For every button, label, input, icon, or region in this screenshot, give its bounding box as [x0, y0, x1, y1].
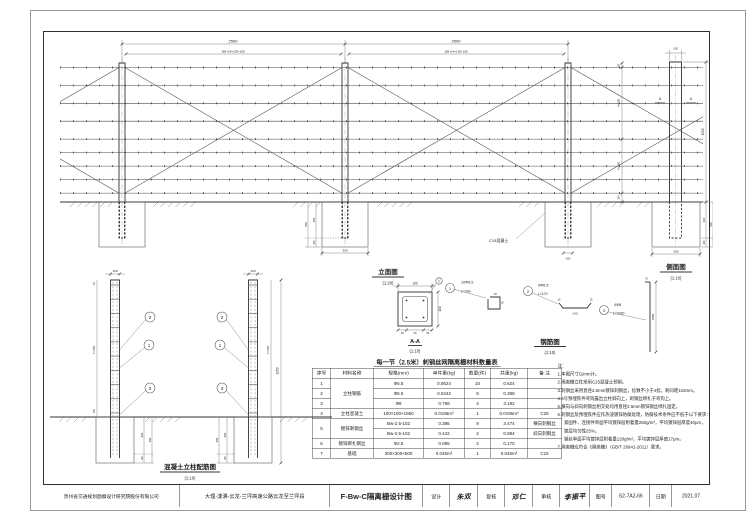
cell: 0.798 — [424, 398, 465, 408]
dim-side-gap: 100 — [703, 240, 706, 245]
col-spec: 规格(mm) — [373, 368, 424, 378]
detail3-dim-b: 1950 — [651, 313, 655, 320]
cell: 0.386 — [424, 418, 465, 428]
callout-3: 3 — [221, 386, 224, 391]
cell: 10 — [464, 378, 491, 388]
project-name: 大理-漾濞-云龙-兰坪高速公路云龙至兰坪段 — [180, 485, 330, 507]
callout-1: 1 — [219, 343, 222, 348]
dim-wire-lower: 4×150 — [617, 162, 621, 171]
c15-concrete-annotation: C15混凝土 100 — [489, 213, 574, 261]
dim-found-embed: 400 — [312, 217, 316, 222]
post-rebar-layout-drawing: 2 1 3 2 1 3 100 100 50 7×250 150 — [45, 265, 337, 483]
rebar-layout-scale: (1:10) — [185, 476, 197, 481]
stirrup-ticks — [249, 285, 258, 413]
rebar-callouts-left: 2 1 3 — [120, 312, 156, 415]
dim-side-found-width: 300 — [673, 249, 678, 253]
rebar-detail-1: 1 10Φ6.5 L=240 70 70 — [446, 281, 505, 310]
cell: 0.170 — [491, 438, 528, 448]
rebar-post-right — [249, 280, 258, 458]
col-name: 材料名称 — [331, 368, 374, 378]
cell: Φ2.5 — [373, 438, 424, 448]
cell: Φ6.5 — [373, 378, 424, 388]
cell: 2 — [464, 438, 491, 448]
dim-side-depth: 500 — [709, 222, 713, 227]
cell: 9 — [464, 418, 491, 428]
fence-elevation-drawing: 2500 2500 165+14×155+165 165+14×155+165 … — [45, 35, 713, 290]
rebar-layout-label: 混凝土立柱配筋图 (1:10) — [160, 462, 220, 481]
drawing-title: F-Bw-C隔离栅设计图 — [330, 485, 423, 507]
cell: 立柱混凝土 — [331, 408, 374, 418]
callout-2: 2 — [221, 315, 224, 320]
note-line: 紧固件、连接件单面平均镀锌层附着量250g/m²，平均镀锌层厚度40μm， — [552, 419, 712, 427]
barbed-wires — [60, 68, 703, 194]
dim-found-gap: 100 — [313, 240, 316, 245]
dim-side-embed: 400 — [702, 217, 706, 222]
section-mark-a-right: A — [690, 97, 693, 101]
rebar-callouts-right: 2 1 3 — [215, 312, 249, 415]
cell: 0.398 — [491, 388, 528, 398]
cell: 0.085 — [424, 438, 465, 448]
cell: 4 — [464, 398, 491, 408]
design-signature: 朱双 — [450, 485, 478, 507]
cell: 3 — [312, 398, 331, 408]
check-signature: 邓仁 — [505, 485, 533, 507]
rebar-detail-2: 2 9Φ6.5 L=170 15 140 15 — [524, 284, 593, 316]
section-and-rebar-details: 1 100 100 25 50 25 A-A (1:10) 1 10Φ6.5 L… — [350, 268, 712, 360]
cell: 1 — [464, 408, 491, 418]
foundations — [99, 202, 700, 247]
title-block: 贵州省交通规划勘察设计研究院股份有限公司 大理-漾濞-云龙-兰坪高速公路云龙至兰… — [43, 484, 710, 507]
note-line: 5.横向与斜向刺钢丝相交处均用直径2.5mm镀锌钢丝绑扎固定。 — [552, 403, 712, 411]
callout-3: 3 — [149, 386, 152, 391]
dim-wire-bottom: 100 — [617, 195, 621, 200]
dim-post-length: 1950 — [276, 367, 280, 374]
cell: 2 — [312, 388, 331, 398]
detail1-dim-a: 70 — [493, 292, 497, 296]
col-unitwt: 单件重(kg) — [424, 368, 465, 378]
callout-1: 1 — [438, 279, 440, 283]
dim-sec-cover-l: 25 — [401, 331, 404, 335]
dim-gap-l: 100 — [141, 456, 144, 461]
drawing-number-label: 图号 — [590, 485, 612, 507]
cell: 4 — [312, 408, 331, 418]
check-label: 复核 — [478, 485, 505, 507]
detail3-spec: 4Φ8 — [614, 303, 621, 307]
detail1-dim-b: 70 — [501, 301, 505, 305]
dim-wire-top: 50 — [617, 63, 621, 66]
table-row: 6 镀锌绑扎钢丝 Φ2.5 0.085 2 0.170 — [312, 438, 562, 448]
section-a-a: 1 100 100 25 50 25 A-A (1:10) — [394, 278, 442, 354]
cell: 0.045m³ — [424, 448, 465, 458]
cell: 0.045m³ — [491, 448, 528, 458]
notes-heading: 注： — [552, 362, 712, 370]
callout-1: 1 — [148, 343, 151, 348]
material-table-block: 每一节（2.5米）刺钢丝网隔离栅材料数量表 序号 材料名称 规格(mm) 单件重… — [312, 357, 562, 459]
note-line: 3.刺钢丝采用直径2.5mm镀锌刺钢丝，捻数不小于4捻，刺间距102mm。 — [552, 386, 712, 394]
cell: Bw-2.5-102 — [373, 418, 424, 428]
cell: 0.0624 — [424, 378, 465, 388]
cell: 7 — [312, 448, 331, 458]
section-scale: (1:10) — [410, 349, 422, 354]
dim-tie-top: 50 — [93, 282, 96, 285]
dim-gap-r: 100 — [224, 456, 227, 461]
review-signature: 李振平 — [560, 485, 590, 507]
cell: Bw-2.5-102 — [373, 428, 424, 438]
cell: 1 — [312, 378, 331, 388]
material-table-title: 每一节（2.5米）刺钢丝网隔离栅材料数量表 — [312, 357, 562, 367]
note-line: 4.3号预埋铁件弯钩露出立柱斜向上，刺钢丝绑扎于弯钩上。 — [552, 394, 712, 402]
dim-found-width: 300 — [342, 249, 347, 253]
dim-side-post-width: 100 — [673, 47, 678, 51]
section-label: A-A — [410, 339, 420, 345]
side-view: 100 A A 1550 400 100 500 — [651, 47, 713, 281]
cell: 基础 — [331, 448, 374, 458]
wire-spacing-dimensions: 50 4×200 4×150 100 — [617, 62, 624, 204]
cell: 3.474 — [491, 418, 528, 428]
cell: 镀锌绑扎钢丝 — [331, 438, 374, 448]
cell: 0.0195m³ — [491, 408, 528, 418]
dim-post-above-ground: 1550 — [701, 128, 705, 135]
note-line: 7.隔离栅应符合《隔离栅》（GB/T 26941-2011）要求。 — [552, 443, 712, 451]
dim-tie-bot: 150 — [93, 408, 96, 413]
dim-section-height: 100 — [438, 306, 442, 312]
material-table: 序号 材料名称 规格(mm) 单件重(kg) 数量(件) 共重(kg) 备 注 … — [312, 368, 562, 459]
dim-sec-cover-r: 25 — [426, 331, 429, 335]
c15-concrete-label: C15混凝土 — [489, 237, 508, 243]
drawing-number: S2-7A2-66 — [612, 485, 650, 507]
company-name: 贵州省交通规划勘察设计研究院股份有限公司 — [43, 485, 180, 507]
table-row: 7 基础 300×300×500 0.045m³ 1 0.045m³ C15 — [312, 448, 562, 458]
dim-depth-l: 500 — [148, 437, 152, 442]
table-row: 1 立柱钢筋 Φ6.5 0.0624 10 0.624 — [312, 378, 562, 388]
dim-section-width: 100 — [412, 281, 418, 285]
rebar-dimensions: 100 100 50 7×250 150 400 100 500 400 100… — [92, 269, 283, 465]
cell: 0.442 — [424, 428, 465, 438]
rebar-layout-title: 混凝土立柱配筋图 — [164, 462, 217, 471]
table-row: 4 立柱混凝土 100×100×1950 0.0195m³ 1 0.0195m³… — [312, 408, 562, 418]
note-line: 2.隔离栅立柱采用C25混凝土预制。 — [552, 378, 712, 386]
dim-panel-span-2: 2500 — [452, 39, 462, 44]
stirrup-ticks — [111, 285, 120, 413]
top-dimensions: 2500 2500 165+14×155+165 165+14×155+165 — [121, 39, 570, 63]
rebar-ground — [50, 417, 332, 463]
post-centerlines — [122, 55, 676, 247]
dim-post-width-found: 100 — [566, 257, 571, 261]
note-line: 镀层均匀性25%。 — [552, 427, 712, 435]
cell: 2 — [464, 428, 491, 438]
rebar-detail-title: 钢筋图 — [540, 337, 560, 346]
note-line: 6.刺钢丝及预埋铁件应作热浸镀锌防腐处理，防腐技术条件应不低于以下要求： — [552, 411, 712, 419]
cell: 100×100×1950 — [373, 408, 424, 418]
table-header-row: 序号 材料名称 规格(mm) 单件重(kg) 数量(件) 共重(kg) 备 注 — [312, 368, 562, 378]
dim-depth-r: 500 — [215, 437, 219, 442]
detail3-dim-a: 70 — [645, 277, 648, 281]
dim-post-top-width-l: 100 — [112, 269, 117, 273]
rebar-detail-label: 钢筋图 (1:10) — [534, 337, 566, 355]
date-value: 2021.07 — [672, 485, 710, 507]
rebar-detail-3: 3 4Φ8 L=2020 70 1950 — [600, 277, 658, 354]
col-seq: 序号 — [312, 368, 331, 378]
col-qty: 数量(件) — [464, 368, 491, 378]
cell: 立柱钢筋 — [331, 378, 374, 408]
notes-block: 注： 1.本图尺寸以mm计。 2.隔离栅立柱采用C25混凝土预制。 3.刺钢丝采… — [552, 362, 712, 451]
ground-line — [60, 202, 703, 207]
note-line: 1.本图尺寸以mm计。 — [552, 370, 712, 378]
cell: 300×300×500 — [373, 448, 424, 458]
callout-2: 2 — [149, 315, 152, 320]
cell: 0.624 — [491, 378, 528, 388]
cell: Φ8 — [373, 398, 424, 408]
rebar-post-left — [111, 280, 120, 458]
callout-3: 3 — [603, 308, 606, 313]
dim-tie-mid-l: 7×250 — [92, 346, 96, 355]
dim-panel-span-1: 2500 — [229, 39, 239, 44]
cell: 0.0442 — [424, 388, 465, 398]
col-totwt: 共重(kg) — [491, 368, 528, 378]
dim-panel-sub-2: 165+14×155+165 — [444, 50, 468, 54]
cell: 0.0195m³ — [424, 408, 465, 418]
callout-1: 1 — [449, 286, 452, 291]
dim-found-depth: 500 — [304, 222, 308, 227]
rebar-detail-scale: (1:10) — [545, 350, 557, 355]
cell: 9 — [464, 388, 491, 398]
section-mark-a-left: A — [659, 97, 662, 101]
dim-sec-mid: 50 — [414, 331, 417, 335]
drawing-sheet: 2500 2500 165+14×155+165 165+14×155+165 … — [0, 0, 750, 515]
cell: 1 — [464, 448, 491, 458]
note-line: 钢丝单面平均镀锌层附着量120g/m²，平均镀锌层厚度17μm。 — [552, 435, 712, 443]
table-row: 5 镀锌刺钢丝 Bw-2.5-102 0.386 9 3.474 横向刺钢丝 — [312, 418, 562, 428]
dim-embed-l: 400 — [140, 432, 144, 437]
design-label: 设计 — [423, 485, 450, 507]
callout-2: 2 — [527, 289, 530, 294]
detail1-spec: 10Φ6.5 — [461, 281, 474, 285]
cell: 镀锌刺钢丝 — [331, 418, 374, 438]
cell: 6 — [312, 438, 331, 448]
detail2-length: L=170 — [538, 292, 548, 296]
cell: Φ6.5 — [373, 388, 424, 398]
review-label: 审核 — [533, 485, 560, 507]
detail2-dim-a: 15 — [558, 298, 561, 302]
cell: 5 — [312, 418, 331, 438]
detail2-dim-c: 15 — [590, 298, 593, 302]
dim-tie-mid-r: 7×250 — [266, 346, 270, 355]
detail2-dim-b: 140 — [572, 312, 577, 316]
dim-post-top-width-r: 100 — [250, 269, 255, 273]
dim-panel-sub-1: 165+14×155+165 — [221, 50, 245, 54]
cell: 0.884 — [491, 428, 528, 438]
cell: 3.192 — [491, 398, 528, 408]
dim-embed-r: 400 — [223, 432, 227, 437]
dim-wire-upper: 4×200 — [617, 99, 621, 108]
detail2-spec: 9Φ6.5 — [538, 284, 548, 288]
date-label: 日期 — [650, 485, 672, 507]
